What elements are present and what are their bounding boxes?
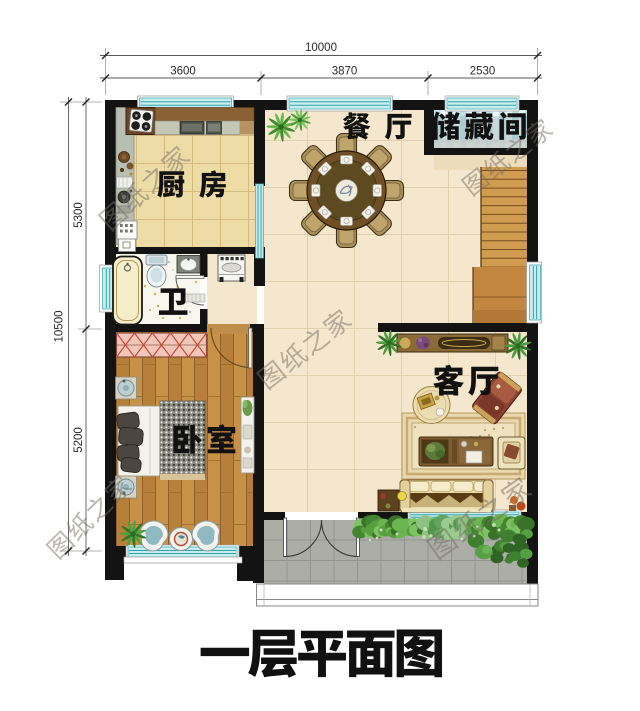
svg-text:3870: 3870	[332, 66, 358, 78]
svg-text:3600: 3600	[170, 66, 196, 78]
svg-text:2530: 2530	[470, 66, 496, 78]
svg-text:10500: 10500	[54, 311, 66, 343]
svg-text:10000: 10000	[305, 42, 337, 54]
svg-text:5300: 5300	[73, 202, 85, 228]
svg-text:5200: 5200	[73, 427, 85, 453]
